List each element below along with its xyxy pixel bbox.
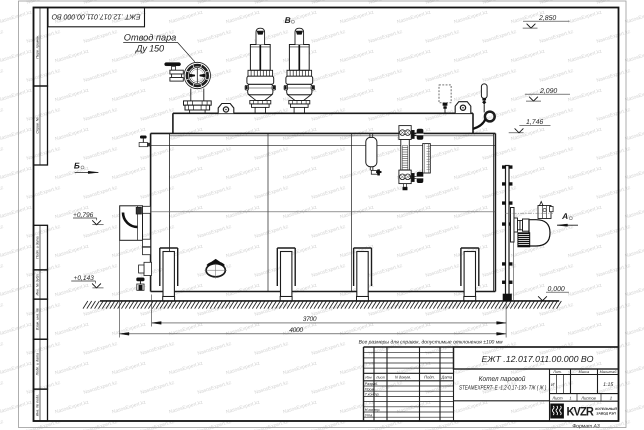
svg-text:Дата: Дата [441,375,453,380]
svg-text:Лист: Лист [375,375,385,379]
svg-text:1:15: 1:15 [603,382,613,388]
svg-text:Изм: Изм [365,375,372,379]
svg-text:Формат А3: Формат А3 [572,423,600,429]
svg-text:Утв.: Утв. [365,413,373,417]
svg-text:1: 1 [569,395,571,400]
svg-text:1,746: 1,746 [526,119,543,126]
svg-text:Перв. примен.: Перв. примен. [36,35,40,59]
svg-text:Н.контр.: Н.контр. [365,408,381,412]
svg-text:Подп.: Подп. [424,375,435,380]
svg-text:Подп. и дата: Подп. и дата [35,236,39,259]
svg-text:В: В [285,15,291,25]
svg-text:Лист: Лист [551,395,563,400]
svg-text:N докум.: N докум. [395,375,411,380]
svg-text:Лит.: Лит. [552,370,561,374]
svg-text:Масштаб: Масштаб [600,370,618,374]
svg-text:КОТЕЛЬНЫЙ: КОТЕЛЬНЫЙ [595,407,617,411]
svg-text:А: А [561,211,568,221]
svg-text:Все размеры для справок, допус: Все размеры для справок, допустимые откл… [359,339,503,345]
svg-text:EЖТ .12.017.011.00.000 ВО: EЖТ .12.017.011.00.000 ВО [51,13,140,22]
svg-text:Т.контр.: Т.контр. [365,393,380,397]
svg-text:Инв. № подл.: Инв. № подл. [36,394,40,416]
svg-text:Справ. №: Справ. № [36,117,40,133]
svg-text:Масса: Масса [579,370,590,374]
svg-text:Подп. и дата: Подп. и дата [36,353,40,376]
svg-text:STEAMEXPERT- Е -1,2-0,17-130-: STEAMEXPERT- Е -1,2-0,17-130- ТЖ ( Ж ) [459,385,546,392]
svg-text:Инв. № дубл.: Инв. № дубл. [35,273,39,295]
svg-text:KVZR: KVZR [566,405,593,419]
svg-text:4000: 4000 [289,327,303,334]
svg-text:3700: 3700 [303,316,317,323]
svg-text:EЖТ .12.017.011.00.000 ВО: EЖТ .12.017.011.00.000 ВО [482,354,594,364]
svg-text:Ду 150: Ду 150 [135,44,165,54]
svg-text:ЗАВОД РЭП: ЗАВОД РЭП [596,411,616,415]
svg-text:Б: Б [74,160,80,170]
svg-text:Отвод пара: Отвод пара [124,32,177,42]
svg-text:Взам. инв. №: Взам. инв. № [36,308,40,330]
svg-text:Котел паровой: Котел паровой [479,375,526,383]
svg-text:Разраб.: Разраб. [365,382,378,386]
svg-text:Пров.: Пров. [365,387,375,391]
svg-text:Листов: Листов [580,395,596,400]
